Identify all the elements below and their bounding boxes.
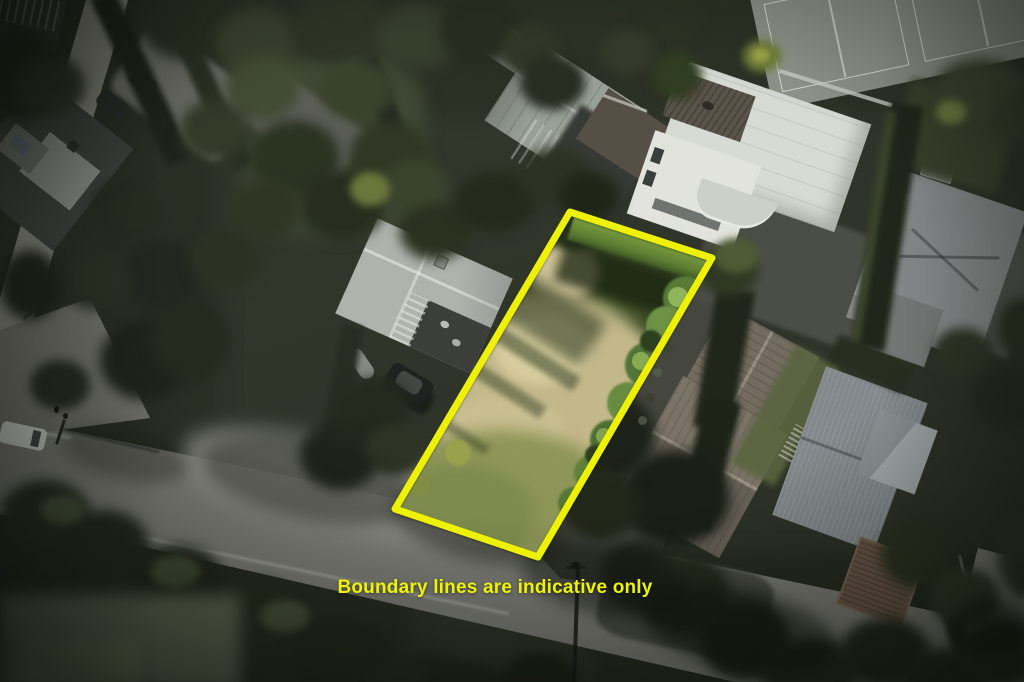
aerial-photo-stage: Boundary lines are indicative only [0, 0, 1024, 682]
disclaimer-text: Boundary lines are indicative only [335, 577, 655, 599]
boundary-polygon [395, 212, 712, 557]
